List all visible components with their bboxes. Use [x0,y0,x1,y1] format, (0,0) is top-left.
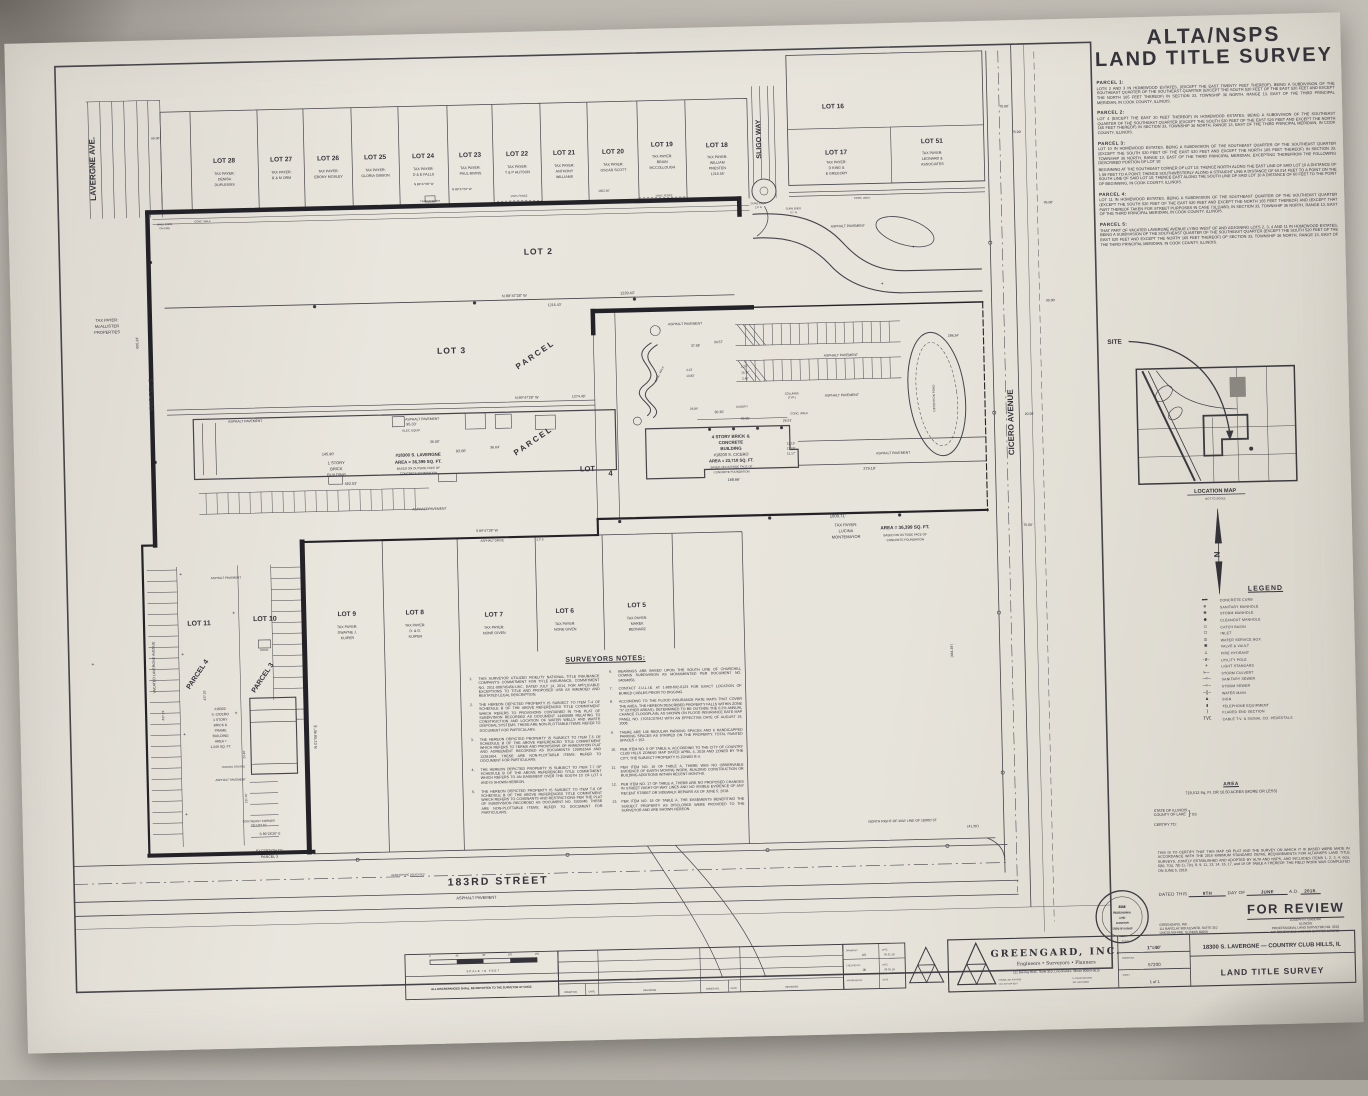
plat-label: 30.30' [714,410,724,414]
plat-label: 12.00' [787,446,796,450]
plat-label: ON-LINE [159,226,170,230]
plat-label: ASPHALT PAVEMENT [228,419,262,424]
plat-label: SCALE IN FEET [466,968,500,973]
plat-label: LOT 22 [506,151,529,159]
plat-label: #18200 S. CICERO [714,451,749,457]
legend-label: FIRE HYDRANT [1221,651,1249,656]
plat-label: 1239.43' [620,291,635,295]
plat-label: 80 [482,953,486,957]
plat-label: TAX PAYER:OSCAR SCOTT [600,162,627,172]
plat-label: LOT 21 [553,149,576,157]
plat-label: LOT 28 [213,157,236,165]
plat-label: TAX PAYER:NONE GIVEN [554,622,577,632]
plat-label: HERETOFORE DEDICATED [391,872,425,877]
note-text: THE HEREON DEPICTED PROPERTY IS SUBJECT … [480,765,601,785]
surveyor-note: 5.THE HEREON DEPICTED PROPERTY IS SUBJEC… [472,787,603,816]
plat-label: 57200 [1148,962,1161,967]
plat-label: 605.34' [135,337,139,349]
plat-label: LOT 20 [602,148,625,156]
plat-label: LOT 25 [364,154,387,162]
surveyor-note: 8.ACCORDING TO THE FLOOD INSURANCE RATE … [610,697,743,726]
plat-label: TAX PAYER:EBONY MOSLEY [314,169,343,179]
plat-label: ASPHALT PAVEMENT [456,895,497,901]
plat-label: PARCEL 3 [251,662,276,694]
legend-label: CATCH BASIN [1220,624,1246,629]
seal-text: LAND [1119,916,1126,919]
plat-label: LOCATION MAP [1194,488,1237,495]
plat-label: LOT 10 [253,616,277,624]
plat-label: JB [862,968,866,972]
plat-label: S 89°26'20" E [259,832,281,837]
note-text: THE HEREON DEPICTED PROPERTY IS SUBJECT … [480,735,602,764]
plat-label: ASPHALT PAVEMENT [668,322,702,327]
plat-label: N 89°47'28" W [414,182,434,186]
plat-label: N 89°47'29" W [452,187,472,191]
legend-label: WATER MAIN [1222,690,1246,695]
plat-label: 168.66' [728,478,741,482]
plat-label: N 89°47'28" W [515,395,539,400]
parcel-description-3: PARCEL 3:LOT 10 IN HOMEWOOD ESTATES, BEI… [1098,135,1337,187]
plat-label: DATE [882,963,888,966]
plat-label: TAX PAYER:LEONARD &ASSOCIATES [921,151,945,167]
surveyor-note: 12.PER ITEM NO. 17 OF TABLE A, THERE ARE… [612,780,744,796]
plat-label: + [91,662,94,668]
plat-label: LOT 16 [822,103,845,111]
plat-label: (444.38') [950,644,954,657]
note-number: 7. [610,687,619,696]
plat-label: 11.17' [787,451,796,455]
plat-label: LOT 24 [412,153,435,161]
plat-label: 95.33' [406,422,417,426]
plat-label: 06-05-18 [884,967,895,971]
site-arrow [1129,339,1230,435]
plat-label: 1"=40' [1147,945,1161,950]
plat-label: CONCRETE FOUNDATION [714,469,750,474]
plat-label: N 01°06'40" E [313,724,318,748]
north-arrow [1214,507,1223,595]
plat-label: LOT 5 [627,602,646,609]
surveyor-note: 13.PER ITEM NO. 18 OF TABLE A, THE EASEM… [612,797,744,813]
plat-label: 1352.56' [598,189,610,193]
plat-label: 1216.43' [548,303,562,307]
plat-label: 05-31-18 [884,952,895,956]
plat-label: CANOPY [736,404,748,408]
plat-label: FAX: 847-634-0507 [999,982,1019,985]
plat-label: CICERO AVENUE [1006,389,1017,456]
plat-label: ELEC. EQUIP. [402,428,420,432]
plat-label: ORDER NO. [1122,957,1135,959]
note-text: PER ITEM NO. 16 OF TABLE A, THERE WAS NO… [620,762,743,778]
plat-label: WALK ENDS [157,222,173,226]
plat-label: SITE [1107,339,1122,346]
note-number: 11. [611,765,620,778]
parcel-text: BEGINNING AT THE SOUTHEAST CORNER OF LOT… [1099,162,1337,186]
plat-label: CONC. WALK [194,219,211,223]
plat-label: NORTH RIGHT-OF-WAY LINE OF 183RD ST. [868,818,937,824]
plat-label: 1 STORY [328,460,345,465]
note-text: ACCORDING TO THE FLOOD INSURANCE RATE MA… [619,697,743,726]
plat-label: CONC. WALK [654,365,666,383]
plat-label: EXCEPTION TO [256,849,283,854]
plat-label: 145.90' [322,452,335,456]
dated-year: 2018. [1300,888,1321,894]
plat-label: TAX PAYER:D & E FALLS [413,167,435,177]
legend: LEGEND ▬▬CONCRETE CURB⊕SANITARY MANHOLE◉… [1189,584,1344,724]
plat-label: 279.19' [863,466,876,470]
plat-label: 437.19' [161,710,165,721]
plat-label: LOT 11 [187,620,211,628]
plat-label: 49.95' [741,416,751,420]
plat-label: LOT 2 [524,246,553,257]
plat-label: AREA = 36,399 SQ. FT. [395,459,442,465]
note-number: 9. [611,730,620,743]
legend-label: STORM CULVERT [1221,670,1253,675]
surveyor-note: 11.PER ITEM NO. 16 OF TABLE A, THERE WAS… [611,762,743,778]
plat-label: TAX PAYER:PAUL BIVINS [459,166,482,176]
plat-label: REVISIONS [643,989,656,992]
dated-prefix: DATED THIS [1159,891,1188,897]
dated-ad: A.D. [1289,889,1299,894]
seal-text: SURVEYOR [1116,923,1129,925]
plat-label: TAX PAYER:ANTHONYWILLIAMS [554,163,575,179]
plat-label: 93.00' [456,449,467,453]
plat-label: ASPHALT PAVEMENT [211,575,242,580]
surveyor-note: 1.THIS SURVEYOR UTILIZED FIDELITY NATION… [469,674,599,699]
plat-label: ASPHALT PAVEMENT [831,224,865,229]
plat-label: DRAWN BY: [846,949,859,952]
plat-label: ORDER NO. [564,991,578,994]
note-number: 1. [469,677,479,699]
legend-label: TELEPHONE EQUIPMENT [1222,703,1269,708]
plat-label: N 89°47'28" W [502,294,527,299]
plat-label: SHEET [1123,975,1131,977]
plat-label: 0.7' N [790,210,797,214]
plat-label: P A R C E L [514,339,555,371]
plat-label: Engineers • Surveyors • Planners [1017,959,1097,967]
dated-month: JUNE [1247,889,1288,896]
parking-stripes-center [206,488,415,514]
parcel-description-4: PARCEL 4:LOT 11 IN HOMEWOOD ESTATES, BEI… [1099,186,1338,217]
parking-stripes-ne [745,321,890,381]
plat-label: S 89°47'28" W [476,528,499,533]
plat-label: DATE [731,987,738,990]
plat-label: LAND TITLE SURVEY [1221,965,1325,977]
plat-label: LOT [580,464,596,473]
plat-label: 1274.40' [572,394,586,398]
legend-label: STORM SEWER [1222,684,1251,689]
plat-label: BUILDING [720,446,742,452]
plat-label: + [185,812,188,818]
plat-label: 120 [508,952,513,956]
plat-label: 75.00' [1012,130,1022,134]
plat-label: 160 [535,952,540,956]
plat-label: BUILDING [327,472,346,477]
note-number: 10. [611,748,620,761]
surveyor-note: 10.PER ITEM NO. 6 OF TABLE A, ACCORDING … [611,745,743,761]
plat-label: CURB ENDS [751,201,767,205]
plat-label: DATE [883,978,889,981]
plat-label: SLIGO WAY [755,119,763,159]
legend-label: CLEANOUT MANHOLE [1220,618,1261,623]
parcel-text: THAT PART OF VACATED LAVERGNE AVENUE LYI… [1100,223,1338,247]
note-number: 12. [612,782,621,795]
plat-label: 4.13' [686,368,693,372]
plat-label: ALL DISCREPANCIES SHALL BE REPORTED TO T… [431,985,533,991]
sheet-title: ALTA/NSPS LAND TITLE SURVEY [1093,23,1334,72]
legend-label: VALVE & VAULT [1221,644,1249,649]
plat-label: 75.00' [1023,523,1033,527]
plat-label: NOT TO SCALE [1205,496,1226,500]
plat-label: ORDER NO. [706,987,720,990]
legend-symbol-icon: TVC [1192,716,1222,723]
plat-label: CONCRETE FOUNDATION [887,537,924,542]
plat-label: TAX PAYER:DWAYNE J.KUIPER [337,625,358,641]
surveyor-note: 9.THERE ARE 146 REGULAR PARKING SPACES A… [611,727,743,743]
plat-label: P A R C E L [512,425,553,457]
plat-label: CHECKED BY: [846,965,861,967]
plat-label: LOT 6 [556,608,575,615]
plat-label: 36.64' [490,445,500,449]
plat-label: ASPHALT PAVEMENT [215,777,246,782]
plat-label: LOT 51 [921,138,944,146]
legend-label: STORM MANHOLE [1220,611,1254,616]
note-text: PER ITEM NO. 17 OF TABLE A, THERE ARE NO… [621,780,744,796]
plat-label: ASPHALT PAVEMENT [824,353,858,358]
surveyor-note: 3.THE HEREON DEPICTED PROPERTY IS SUBJEC… [471,735,602,764]
plat-label: PARCEL 4 [186,658,211,690]
plat-label: N [1213,551,1222,557]
legend-label: FLARED END SECTION [1222,710,1264,715]
plat-label: TAX PAYER:D KING &E GREGORY [825,160,848,176]
plat-label: TAX PAYER:R & M ORM [271,170,292,180]
parcel-description-2: PARCEL 2:LOT 4 (EXCEPT THE EAST 20 FEET … [1097,105,1336,136]
parcel-description-5: PARCEL 5:THAT PART OF VACATED LAVERGNE A… [1100,217,1339,248]
seal-text: PROFESSIONAL [1113,911,1132,914]
plat-label: AREA = 23,718 SQ. FT. [709,457,754,463]
plat-label: NO. 184-002864 [1073,982,1090,984]
note-text: BEARINGS ARE BASED UPON THE SOUTH LINE O… [618,667,741,683]
plat-label: 18300 S. LAVERGNE — COUNTRY CLUB HILLS, … [1203,942,1342,951]
plat-label: + [912,244,915,250]
plat-label: TAX PAYER:T & P HUTSON [505,165,531,175]
plat-label: 26.91' [783,418,793,422]
plat-label: 20.00' [1025,412,1035,416]
location-map [1136,366,1297,485]
plat-label: DETENTION POND [932,384,937,412]
legend-label: INLET [1220,631,1231,635]
legend-label: SIGN [1222,697,1231,701]
plat-label: CONCRETE FOUNDATION [400,471,437,476]
plat-label: LOT 3 [437,345,466,356]
plat-label: AREA = 36,399 SQ. FT. [880,524,929,530]
plat-label: CONC. WALK [854,196,871,200]
note-text: CONTACT J.U.L.I.E. AT 1-800-892-0123 FOR… [619,684,742,695]
plat-label: CONC. [260,648,269,652]
notes-column-1: 1.THIS SURVEYOR UTILIZED FIDELITY NATION… [469,674,602,820]
plat-label: TAX PAYER:WILLIAMPRESTEN1216.56' [707,155,728,176]
bottom-strip [405,930,1356,1004]
plat-label: TAX PAYER:BRIANMCCOLLOUGH [649,154,676,170]
surveyor-info: JOSEPH R. GADDINI ILLINOIS PROFESSIONAL … [1255,916,1355,934]
plat-label: #18300 S. LAVERGNE [395,452,440,458]
legend-label: CONCRETE CURB [1220,598,1253,603]
plat-label: (41.30') [967,824,978,828]
plat-label: PARCEL 3 [261,855,278,859]
plat-label: PHONE: 847-634-0505 [999,979,1022,982]
plat-label: #18320S. CICERO1 STORYBRICK &FRAMEBUILDI… [210,707,232,749]
plat-label: 40 [455,953,459,957]
surveyor-note: 2.THE HEREON DEPICTED PROPERTY IS SUBJEC… [470,700,601,733]
plat-label: TAX PAYER:MAREKBEDNARZ [627,616,648,632]
plat-label: ASPHALT PAVEMENT [405,417,439,422]
plat-label: TAX PAYER:NONE GIVEN [483,625,506,635]
plat-label: 437.25' [203,690,207,701]
seal-text: 3318 [1118,905,1125,909]
plat-label: DATE [589,990,596,993]
legal-descriptions: PARCEL 1:LOTS 2 AND 3 IN HOMEWOOD ESTATE… [1096,75,1338,253]
plat-label: LOT 23 [459,152,482,160]
note-number: 6. [609,670,618,683]
plat-label: VINYL FENCE [511,194,528,198]
plat-label: 66.00' [151,136,160,140]
surveyor-note: 7.CONTACT J.U.L.I.E. AT 1-800-892-0123 F… [610,684,742,696]
legend-label: SANITARY MANHOLE [1220,604,1259,609]
plat-label: TAX PAYER:GLORIA GIBSON [361,168,390,178]
plat-label: + [232,611,235,617]
seal-text: STATE OF ILLINOIS [1112,927,1134,931]
drawing-border [55,42,1113,992]
plat-label: ASPHALT PAVEMENT [825,393,859,398]
plat-label: 95.00' [1044,200,1054,204]
plat-label: LOT 9 [338,611,357,618]
plat-label: ASPHALT DRIVE [480,538,503,543]
plat-label: TAX PAYER:DENISADUPLESSIS [214,171,235,187]
plat-label: 1 of 1 [1150,979,1161,984]
legend-label: WATER SERVICE BOX [1221,637,1261,642]
dated-dayof: DAY OF [1228,890,1246,895]
plat-label: LOT 26 [317,155,340,163]
note-text: PER ITEM NO. 6 OF TABLE A, ACCORDING TO … [620,745,743,761]
plat-label: TAX PAYER:LUCINAMONTEMAYOR [831,522,860,540]
note-number: 4. [471,768,480,785]
plat-label: TAX PAYER:D. & D.KUIPER [405,623,426,639]
plat-label: 452.53' [345,482,358,486]
plat-label: LAVERGNE AVE. [88,137,99,201]
plat-label: REVISIONS [785,985,798,988]
jurat-county: COUNTY OF LAKE [1154,813,1186,818]
plat-label: APPROVED BY: [847,979,864,982]
legend-label: LIGHT STANDARD [1221,664,1254,669]
plat-label: AS [862,953,866,957]
plat-label: 15.37' [741,370,750,374]
certification-text: THIS IS TO CERTIFY THAT THIS MAP OR PLAT… [1158,846,1350,873]
plat-label: 1.24' [741,364,748,368]
plat-label: LOT 18 [706,142,729,150]
plat-label: 2.9' N [755,205,762,209]
parking-stripes-leg [147,567,307,840]
note-text: PER ITEM NO. 18 OF TABLE A, THE EASEMENT… [621,797,744,813]
plat-label: 0 [429,954,431,958]
parcel-description-1: PARCEL 1:LOTS 2 AND 3 IN HOMEWOOD ESTATE… [1096,75,1335,106]
jurat-ss: SS [1192,812,1197,816]
plat-label: VINYL FENCE [656,193,673,197]
parcel-text: LOT 4 (EXCEPT THE EAST 20 FEET THEREOF) … [1097,111,1335,135]
plat-label: CONCRETE [719,440,744,446]
plat-label: 131.76' [244,793,248,803]
plat-label: 2.40' [742,376,749,380]
note-text: THIS SURVEYOR UTILIZED FIDELITY NATIONAL… [478,674,599,698]
plat-label: LOT 27 [270,156,293,164]
plat-label: 26.84' [690,407,699,411]
plat-label: LOT 17 [825,149,848,157]
parcel-text: LOT 11 IN HOMEWOOD ESTATES, BEING A SUBD… [1099,193,1337,217]
plat-label: 286.34' [948,333,959,337]
legend-label: CABLE T.V. & SIGNAL CO. PEDESTALS [1222,716,1292,722]
plat-label: ASPHALT PAVEMENT [412,507,446,512]
plat-label: 1000.71' [830,513,846,518]
plat-label: 34.57' [714,340,724,344]
plat-label: 10.83' [686,374,695,378]
survey-sheet: LAVERGNE AVE.SLIGO WAYCICERO AVENUE183RD… [4,12,1363,1053]
dated-day: 8TH [1189,890,1226,897]
jurat: STATE OF ILLINOIS COUNTY OF LAKE } SS CE… [1154,808,1197,827]
plat-label: (TYP.) [788,395,796,399]
notes-column-2: 6.BEARINGS ARE BASED UPON THE SOUTH LINE… [609,667,744,818]
plat-label: PARKING STRIPES [222,764,246,769]
plat-label: TRANSFORMER [420,199,440,203]
plat-label: LOT 19 [651,141,674,149]
plat-label: LOT 7 [485,611,504,618]
plat-label: 183RD STREET [448,874,549,888]
plat-label: VACATED LAVERGNE AVENUE [151,641,156,694]
plat-label: PARCEL 5 [148,378,156,410]
photo-background: LAVERGNE AVE.SLIGO WAYCICERO AVENUE183RD… [0,0,1368,1080]
plat-label: 95.00' [1046,298,1056,302]
plat-label: 11.15' [787,441,796,445]
plat-label: DATE [882,948,888,951]
surveyor-note: 4.THE HEREON DEPICTED PROPERTY IS SUBJEC… [471,765,601,785]
note-number: 13. [612,800,621,813]
plat-label: 4 STORY BRICK & [712,433,751,439]
plat-label: + [183,732,186,738]
plat-label: CURB ENDS [786,206,802,210]
plat-label: 22.40' [242,750,246,759]
plat-label: + [181,652,184,658]
plat-label: LOT 8 [406,609,425,616]
plat-label: 5.3' S [537,537,544,541]
legend-label: SANITARY SEWER [1222,677,1256,682]
plat-label: IL. REGISTRATION [1073,977,1093,980]
plat-label: + [179,572,182,578]
firm-address: GREENGARD, INC. 111 BARCLAY BOULEVARD, S… [1159,921,1254,935]
plat-label: TAX PAYER:McALLISTERPROPERTIES [94,317,120,335]
note-text: THERE ARE 146 REGULAR PARKING SPACES AND… [620,727,743,743]
building-18320-cicero [250,697,298,774]
legend-label: UTILITY POLE [1221,657,1247,662]
plat-label: 36.00' [430,440,440,444]
plat-label: GREENGARD, INC. [990,946,1121,960]
plat-label: SCALE [1122,940,1130,943]
surveyor-note: 6.BEARINGS ARE BASED UPON THE SOUTH LINE… [609,667,741,683]
plat-label: 111 Barclay Blvd., Suite 310, Lincolnshi… [1013,968,1100,974]
note-text: THE HEREON DEPICTED PROPERTY IS SUBJECT … [479,700,601,733]
plat-label: + [881,281,884,287]
plat-label: OF LOT 10 [251,823,266,827]
plat-label: ASPHALT PAVEMENT [876,451,910,456]
note-text: THE HEREON DEPICTED PROPERTY IS SUBJECT … [481,787,603,816]
plat-label: 37.58' [691,344,701,348]
plat-label: + [235,711,238,717]
